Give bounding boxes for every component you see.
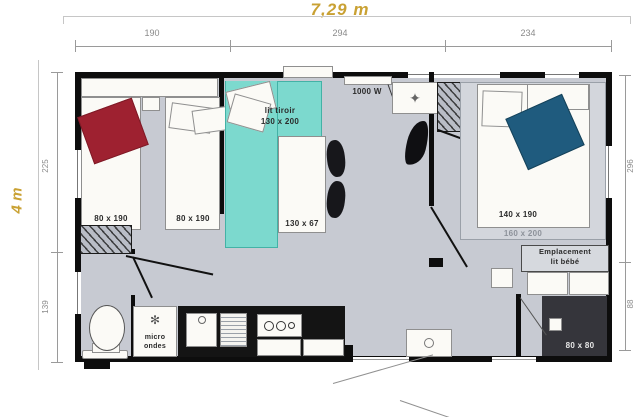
nightstand <box>142 97 160 111</box>
overall-depth-label: 4 m <box>9 178 26 224</box>
door-frame <box>345 345 353 360</box>
window-top-1 <box>408 72 500 78</box>
bed-double-label: 140 x 190 <box>488 210 548 220</box>
burner-icon <box>288 322 295 329</box>
sofa-bed-name-label: lit tiroir <box>240 106 320 116</box>
burner-icon <box>264 321 274 331</box>
window-top-2 <box>545 72 579 78</box>
drainer <box>220 313 247 347</box>
cabinet-front <box>303 339 344 356</box>
dim-tick <box>75 40 76 52</box>
platform-label: 160 x 200 <box>488 229 558 239</box>
dim-top-3: 234 <box>486 28 570 38</box>
dim-tick <box>51 252 63 253</box>
entrance-threshold <box>353 359 409 360</box>
microwave-line2: ondes <box>133 343 177 351</box>
headboard-shelf <box>81 78 218 97</box>
dim-top-2: 294 <box>298 28 382 38</box>
window-right-glass <box>608 146 609 198</box>
microwave-fan-icon: ✻ <box>135 309 175 331</box>
dim-tick <box>51 72 63 73</box>
entrance-door-swing-line <box>400 400 450 417</box>
window-left-2-glass <box>77 272 78 314</box>
dim-tick <box>619 262 631 263</box>
fan-glyph: ✻ <box>150 313 160 327</box>
overall-width-dim-line <box>63 16 630 17</box>
cabinet-front <box>257 339 301 356</box>
faucet-icon <box>198 316 206 324</box>
baby-area-line1: Emplacement <box>521 247 609 256</box>
left-segments-dim-line <box>57 72 58 362</box>
window-top-2-glass <box>545 74 579 75</box>
heater-unit <box>344 76 392 85</box>
dim-tick <box>619 75 631 76</box>
overall-depth-dim-line <box>38 60 39 370</box>
toilet-bowl <box>89 305 125 351</box>
dim-right-2: 88 <box>626 284 638 324</box>
window-top-1-glass <box>408 74 500 75</box>
baby-area-line2: lit bébé <box>521 257 609 266</box>
bed-single-left-label: 80 x 190 <box>83 214 139 224</box>
hob <box>257 314 302 337</box>
dim-tick <box>51 362 63 363</box>
window-left-1-glass <box>77 150 78 198</box>
cabinet <box>527 272 568 295</box>
burner-icon <box>276 321 286 331</box>
window-bottom-glass <box>492 359 536 360</box>
vent-cabinet: ✦ <box>392 82 438 114</box>
dim-right-1: 296 <box>626 146 638 186</box>
floorplan: 7,29 m 190 294 234 4 m 225 139 296 88 <box>0 0 640 417</box>
window-right <box>606 146 612 198</box>
bed-single-right-label: 80 x 190 <box>167 214 219 224</box>
dim-top-1: 190 <box>110 28 194 38</box>
dim-left-1: 225 <box>41 146 53 186</box>
dim-tick <box>619 350 631 351</box>
dim-tick <box>230 40 231 52</box>
microwave-line1: micro <box>133 334 177 342</box>
dim-tick <box>630 16 631 24</box>
table-size-label: 130 x 67 <box>280 219 324 229</box>
shower-label: 80 x 80 <box>556 341 604 351</box>
door-jamb-bedroom-right <box>429 258 443 267</box>
stool <box>491 268 513 288</box>
wardrobe-left <box>80 225 132 254</box>
window-left-2 <box>75 272 81 314</box>
dim-tick <box>445 40 446 52</box>
sofa-bed-size-label: 130 x 200 <box>240 117 320 127</box>
dim-tick <box>63 16 64 24</box>
cabinet <box>569 272 609 295</box>
heater-label: 1000 W <box>338 87 396 97</box>
top-segments-dim-line <box>75 46 612 47</box>
overall-width-label: 7,29 m <box>240 0 440 20</box>
dim-tick <box>611 40 612 52</box>
window-bay-sofa <box>283 66 333 78</box>
doorstep <box>84 362 110 369</box>
washbasin-sink-icon <box>424 338 434 348</box>
dim-left-2: 139 <box>41 287 53 327</box>
shower-drain <box>549 318 562 331</box>
vent-star-icon: ✦ <box>409 90 421 107</box>
wall-shower <box>516 294 521 356</box>
